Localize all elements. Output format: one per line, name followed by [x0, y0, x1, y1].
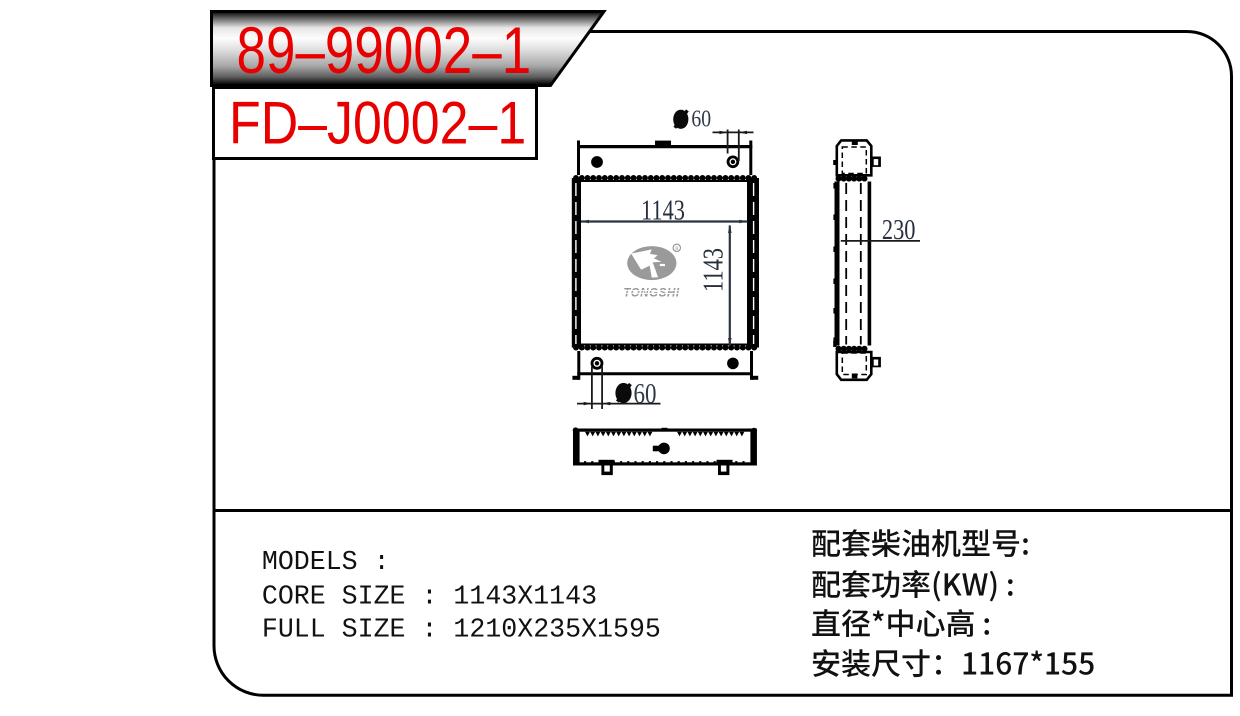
svg-text:FULL SIZE : 1210X235X1595: FULL SIZE : 1210X235X1595	[262, 615, 661, 645]
svg-text:230: 230	[882, 215, 916, 246]
svg-text:60: 60	[634, 378, 657, 410]
svg-text:1143: 1143	[641, 195, 685, 226]
svg-text:FD–J0002–1: FD–J0002–1	[229, 89, 526, 157]
svg-text:89–99002–1: 89–99002–1	[237, 13, 532, 87]
svg-text:60: 60	[691, 105, 711, 132]
svg-text:1143: 1143	[698, 248, 729, 292]
svg-text:CORE SIZE : 1143X1143: CORE SIZE : 1143X1143	[262, 581, 597, 611]
svg-text:R: R	[675, 246, 679, 252]
svg-text:MODELS :: MODELS :	[262, 547, 390, 577]
